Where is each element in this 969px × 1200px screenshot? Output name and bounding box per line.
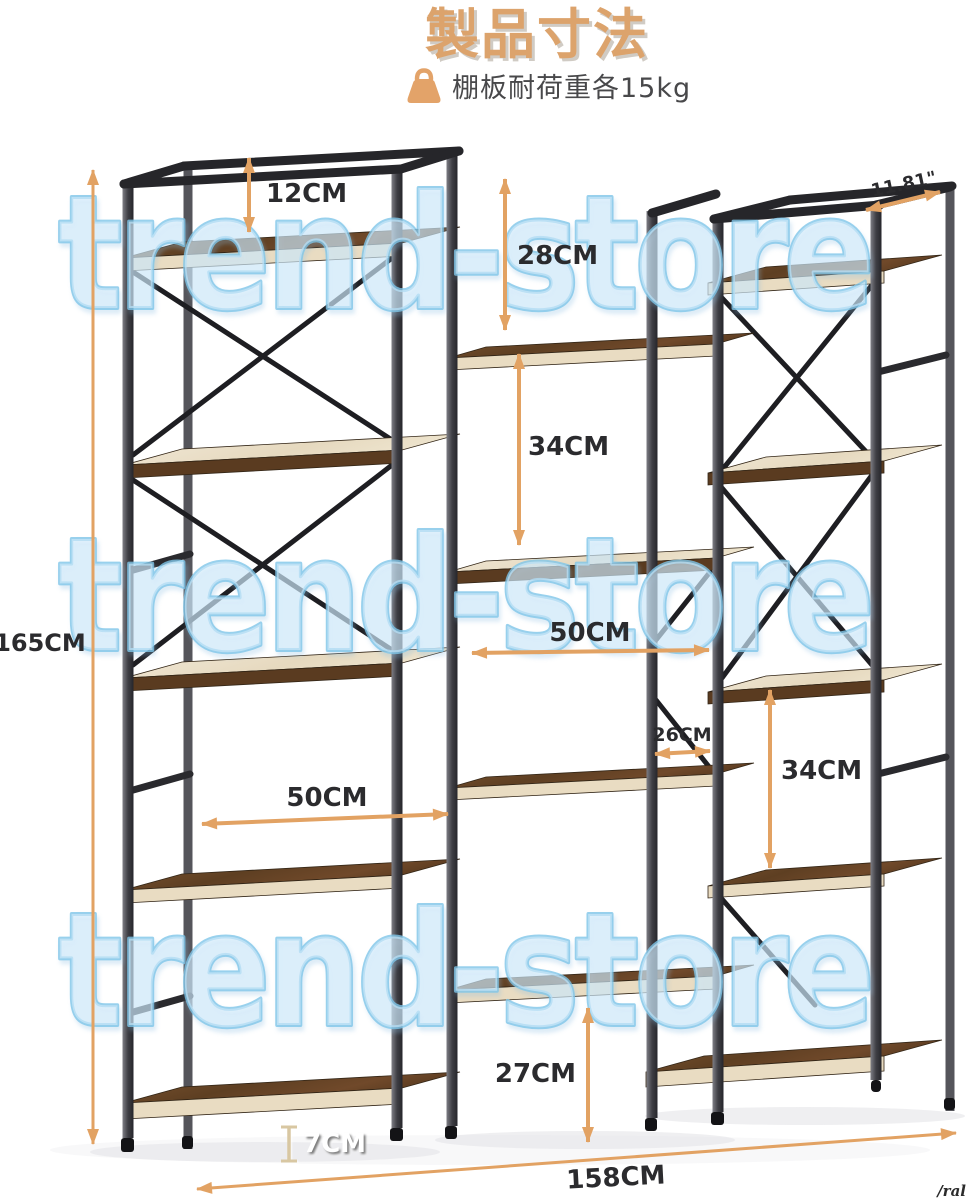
page-title: 製品寸法 bbox=[425, 3, 649, 66]
dimension-label: 158CM bbox=[566, 1160, 667, 1195]
dimension-label: 34CM bbox=[781, 756, 862, 786]
dimension-label: 28CM bbox=[517, 241, 598, 271]
watermark-row-3: trend-store bbox=[58, 879, 870, 1063]
product-dimension-diagram: trend-store trend-store trend-store 製品寸法… bbox=[0, 0, 969, 1200]
dimension-label: 34CM bbox=[528, 432, 609, 462]
dimension-label: 50CM bbox=[286, 783, 367, 813]
corner-note: /ral bbox=[935, 1182, 966, 1200]
header: 製品寸法 棚板耐荷重各15kg bbox=[408, 3, 692, 104]
dimension-label: 27CM bbox=[495, 1059, 576, 1089]
dimension-label: 7CM bbox=[303, 1129, 366, 1159]
dimension-label: 165CM bbox=[0, 629, 86, 657]
load-capacity-subtitle: 棚板耐荷重各15kg bbox=[452, 73, 691, 104]
watermark-row-2: trend-store bbox=[58, 504, 870, 688]
dimension-label: 12CM bbox=[266, 179, 347, 209]
dimension-label: 26CM bbox=[652, 724, 711, 746]
dimension-side-gap: 26CM bbox=[652, 724, 711, 754]
dimension-left-width: 50CM bbox=[202, 783, 448, 824]
dimension-label: 50CM bbox=[549, 618, 630, 648]
dimension-middle-right-gap: 34CM bbox=[770, 690, 862, 868]
diagram-canvas: trend-store trend-store trend-store 製品寸法… bbox=[0, 0, 969, 1200]
watermark-layer: trend-store trend-store trend-store bbox=[58, 162, 870, 1063]
weight-icon bbox=[408, 71, 441, 104]
watermark-row-1: trend-store bbox=[58, 162, 870, 346]
